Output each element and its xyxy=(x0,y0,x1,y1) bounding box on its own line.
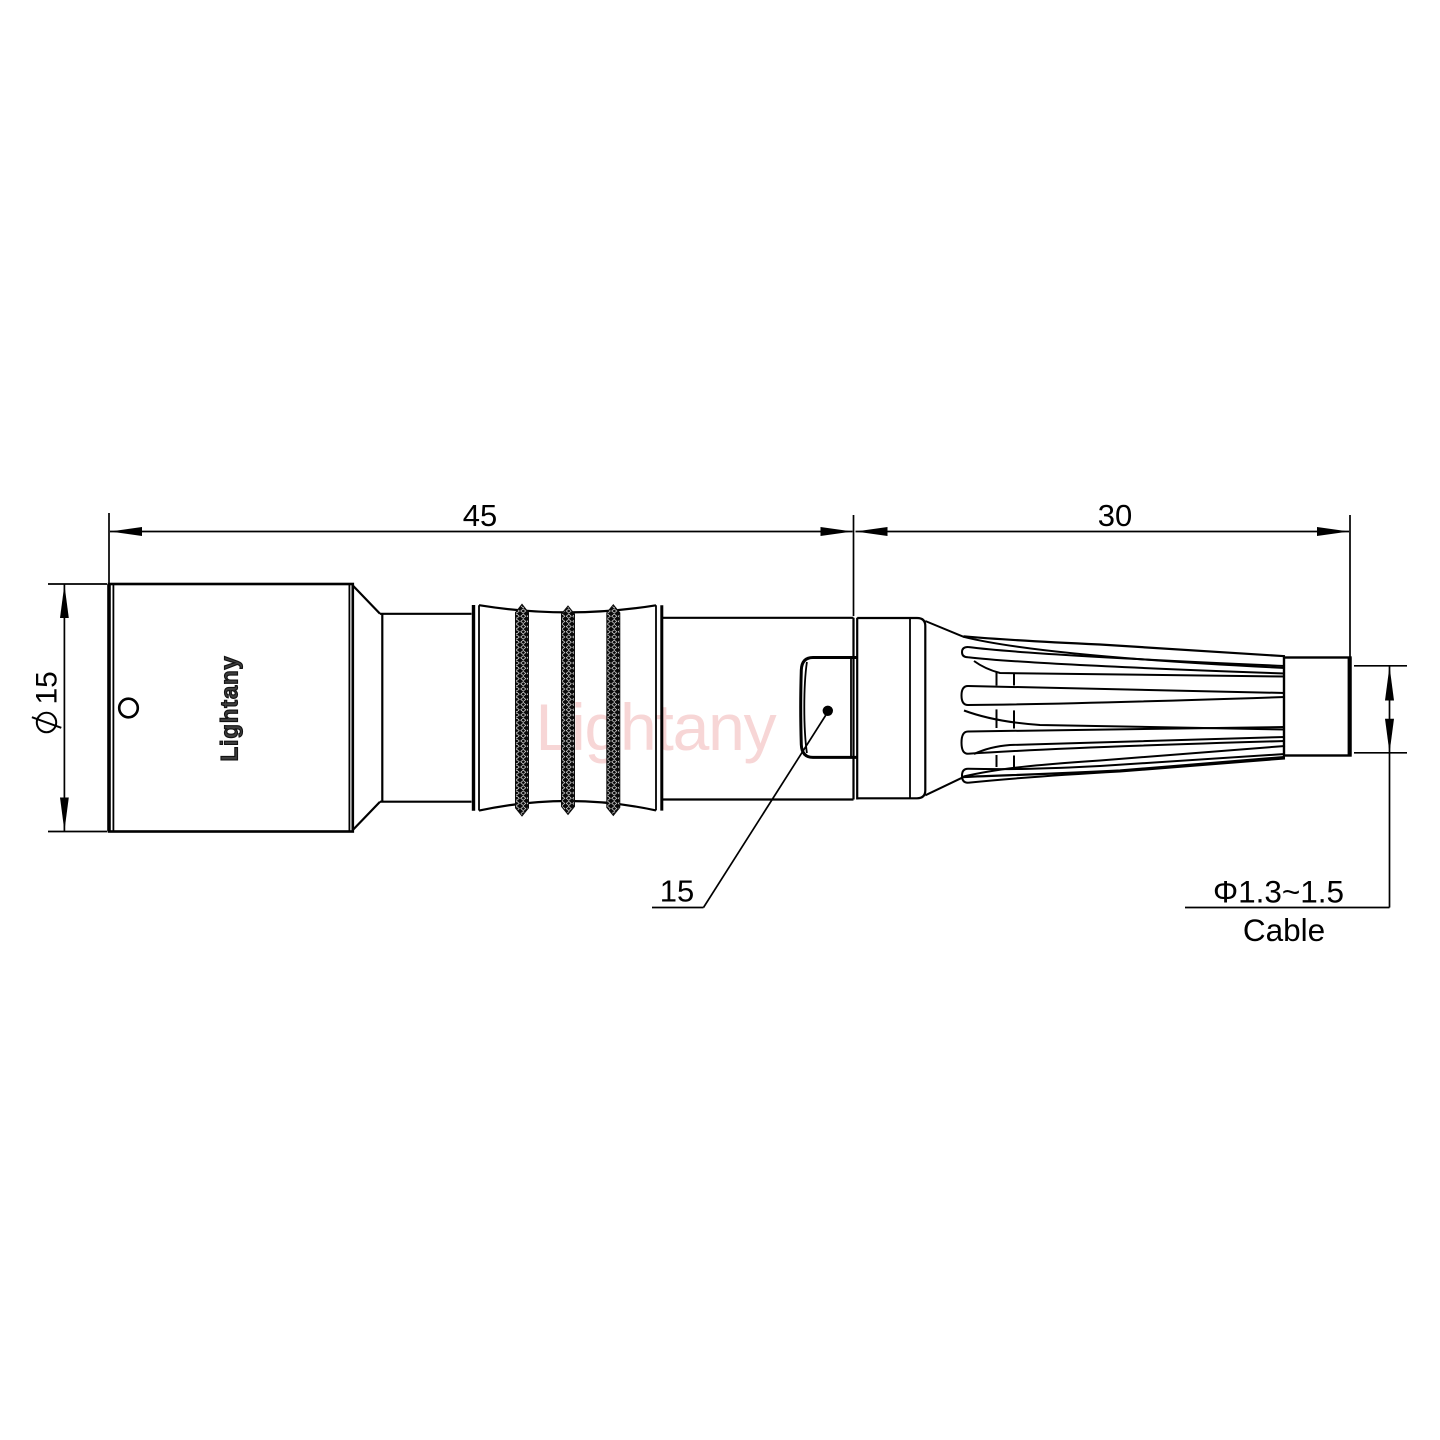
svg-text:30: 30 xyxy=(1098,498,1132,533)
svg-text:Φ1.3~1.5: Φ1.3~1.5 xyxy=(1213,874,1344,910)
svg-text:Cable: Cable xyxy=(1243,912,1325,948)
svg-text:15: 15 xyxy=(30,671,63,704)
svg-text:Lightany: Lightany xyxy=(217,656,244,762)
svg-text:45: 45 xyxy=(463,498,497,533)
svg-text:15: 15 xyxy=(660,874,694,909)
